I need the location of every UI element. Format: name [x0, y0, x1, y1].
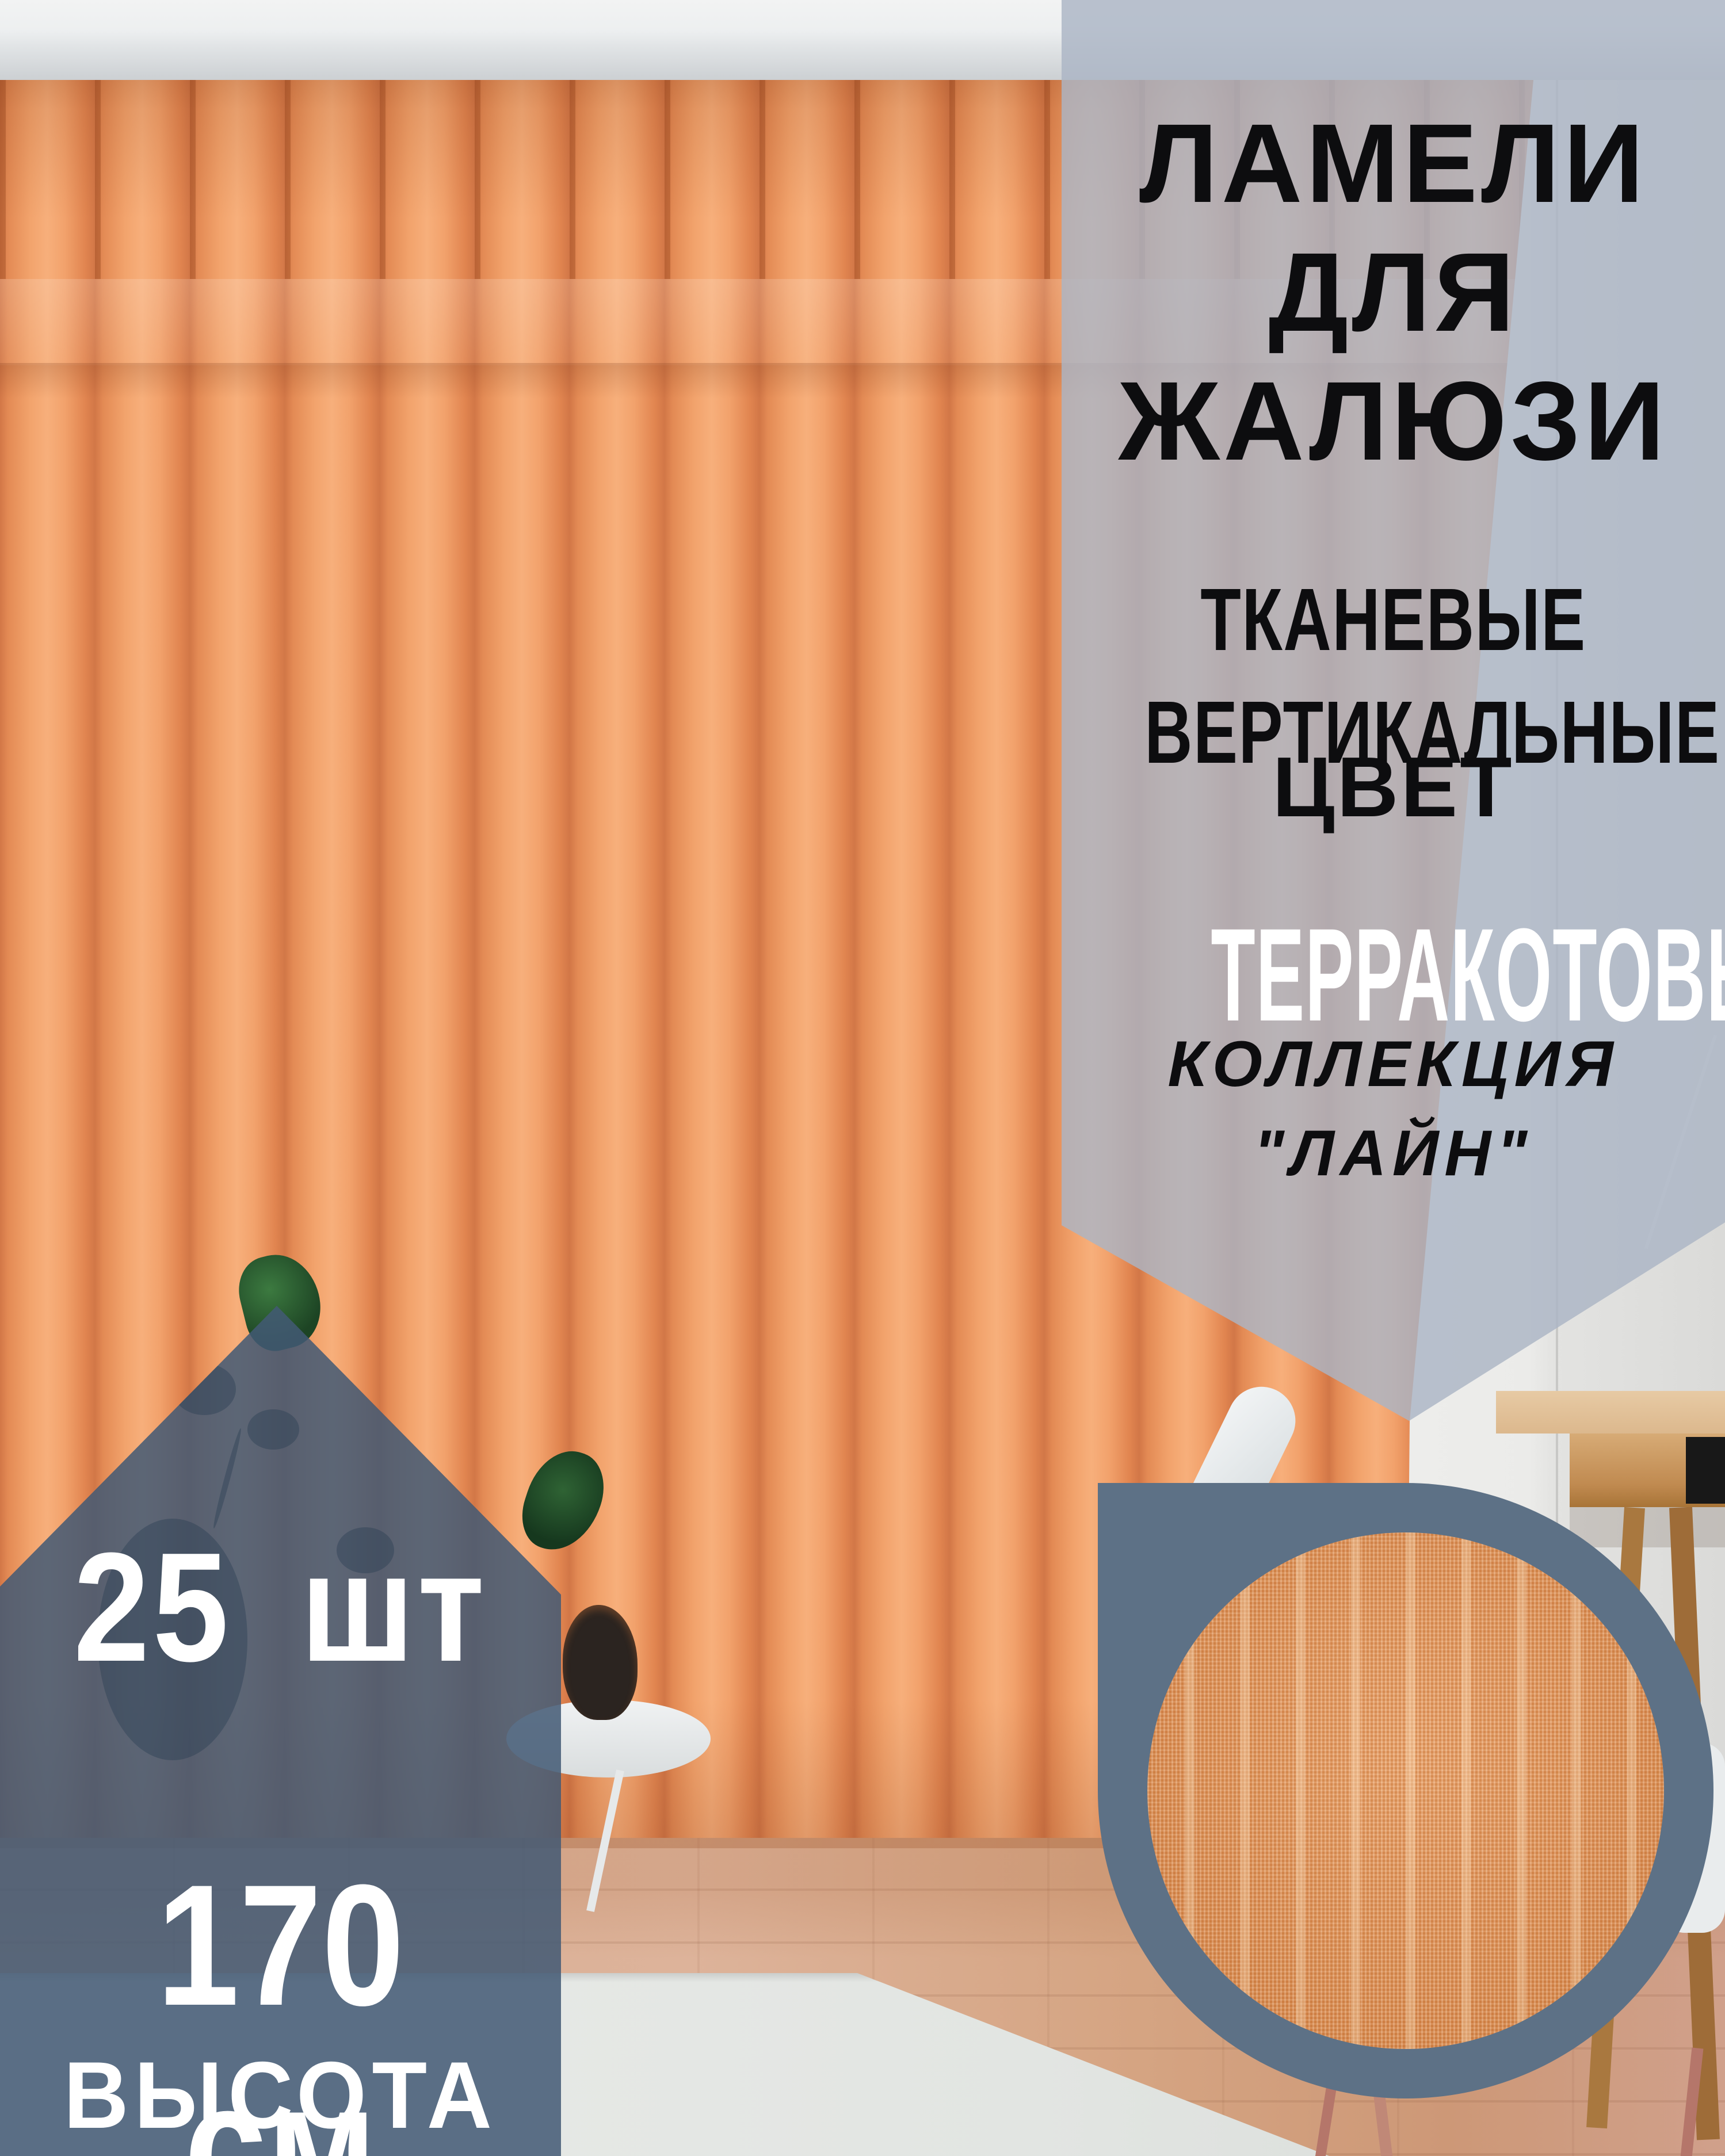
fabric-swatch — [1147, 1532, 1664, 2049]
collection-value: "ЛАЙН" — [1062, 1108, 1725, 1198]
flower-silhouette — [247, 1409, 299, 1450]
dining-table-rear-edge — [1496, 1391, 1725, 1433]
collection-label: КОЛЛЕКЦИЯ — [1062, 1019, 1725, 1108]
product-card: ЛАМЕЛИ ДЛЯ ЖАЛЮЗИ ТКАНЕВЫЕ ВЕРТИКАЛЬНЫЕ … — [0, 0, 1725, 2156]
headline-line: ДЛЯ — [1062, 228, 1725, 357]
collection-text: КОЛЛЕКЦИЯ "ЛАЙН" — [1062, 1019, 1725, 1198]
height-label-text: ВЫСОТА — [14, 2041, 547, 2150]
headline-line: ЖАЛЮЗИ — [1062, 357, 1725, 486]
headline-line: ЛАМЕЛИ — [1062, 99, 1725, 228]
quantity-text: 25 шт — [34, 1519, 528, 1697]
color-label: ЦВЕТ — [1062, 739, 1725, 836]
swatch-badge — [1098, 1483, 1713, 2098]
stem-silhouette — [211, 1428, 243, 1529]
material-line: ТКАНЕВЫЕ — [1144, 563, 1642, 676]
headline: ЛАМЕЛИ ДЛЯ ЖАЛЮЗИ — [1062, 99, 1725, 486]
dark-chair-cushion — [1686, 1437, 1725, 1504]
decor-bowl — [563, 1605, 638, 1720]
dining-table-shadow — [1570, 1507, 1725, 1547]
